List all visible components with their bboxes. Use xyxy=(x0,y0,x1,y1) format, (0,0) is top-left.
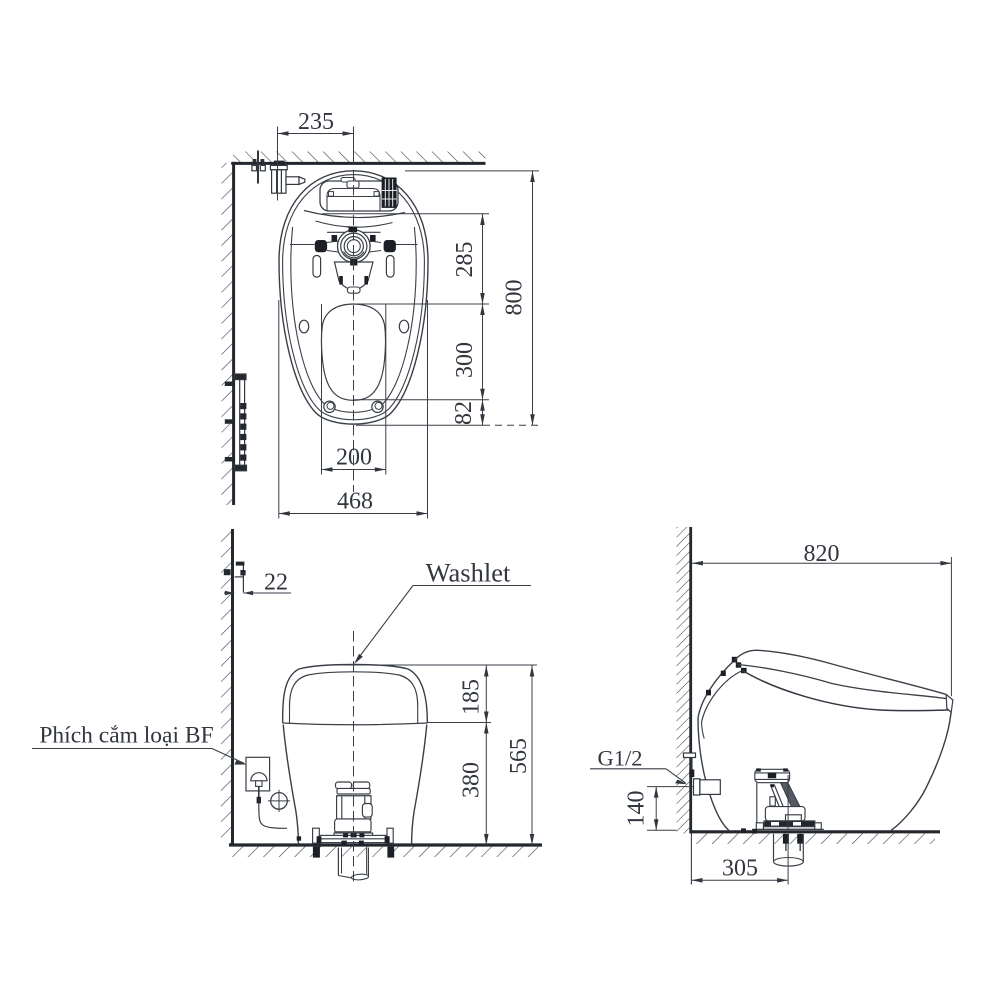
svg-text:200: 200 xyxy=(336,445,372,471)
svg-text:285: 285 xyxy=(452,242,478,278)
svg-text:305: 305 xyxy=(722,856,758,882)
svg-text:22: 22 xyxy=(264,570,288,596)
svg-text:800: 800 xyxy=(502,280,528,316)
svg-text:380: 380 xyxy=(459,762,485,798)
svg-text:300: 300 xyxy=(452,342,478,378)
svg-text:82: 82 xyxy=(451,401,477,425)
svg-text:468: 468 xyxy=(337,489,373,515)
svg-text:140: 140 xyxy=(624,791,650,827)
svg-text:Phích cắm loại BF: Phích cắm loại BF xyxy=(39,723,213,749)
svg-text:565: 565 xyxy=(506,738,532,774)
svg-text:185: 185 xyxy=(459,679,485,715)
svg-text:G1/2: G1/2 xyxy=(598,746,643,771)
svg-text:820: 820 xyxy=(804,541,840,567)
svg-text:Washlet: Washlet xyxy=(426,558,511,588)
svg-text:235: 235 xyxy=(298,109,334,135)
